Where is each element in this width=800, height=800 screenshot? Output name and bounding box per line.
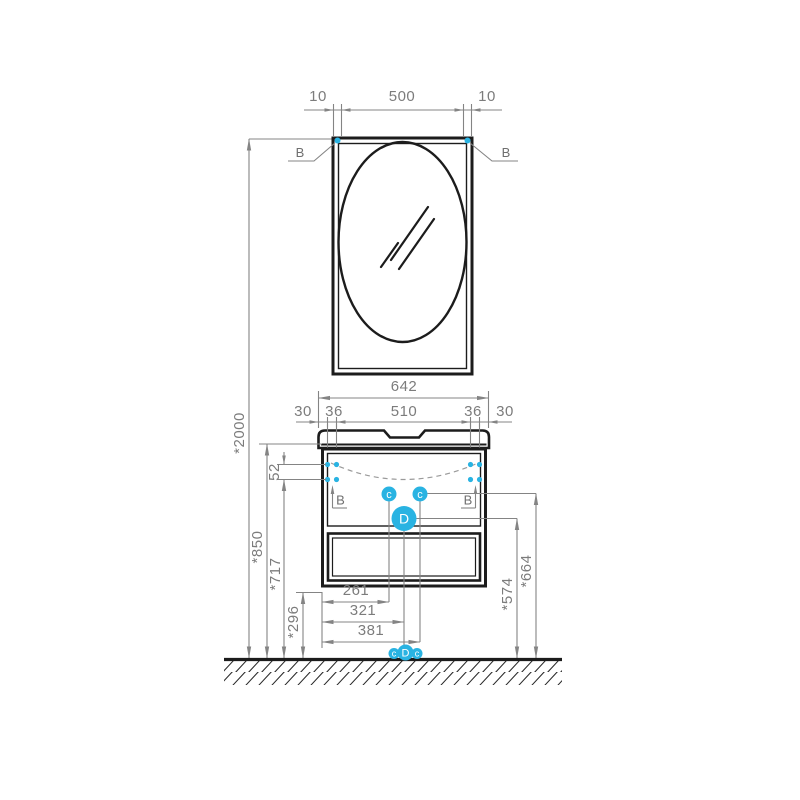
mirror-width-dimension: 10 500 10 — [304, 88, 502, 136]
svg-text:30: 30 — [294, 403, 312, 420]
arrowhead — [342, 108, 351, 112]
floor-connection-markers: c D c — [389, 645, 423, 661]
mount-callout-right: B — [470, 143, 518, 161]
mount-point-dot-left — [335, 138, 341, 144]
svg-text:B: B — [502, 145, 511, 160]
svg-text:36: 36 — [464, 403, 482, 420]
svg-text:c: c — [392, 649, 397, 659]
dim-label-2000: *2000 — [231, 412, 248, 454]
dim-label-total-width: 642 — [391, 378, 418, 395]
mirror-cabinet: B B — [249, 138, 518, 375]
svg-text:B: B — [464, 493, 473, 508]
arrowhead — [325, 108, 334, 112]
dim-label-850: *850 — [249, 531, 266, 564]
arrowhead — [472, 108, 481, 112]
mount-callout-left: B — [288, 143, 335, 161]
mirror-frame-inner — [339, 144, 467, 369]
svg-text:c: c — [415, 649, 420, 659]
connection-offset-dimensions: 261 321 381 — [322, 582, 420, 648]
svg-text:c: c — [417, 489, 423, 501]
arrowhead — [455, 108, 464, 112]
glass-glare-icon — [381, 207, 434, 269]
arrowhead — [337, 420, 346, 424]
svg-text:D: D — [402, 648, 410, 660]
dim-label-mirror-width: 500 — [389, 88, 416, 105]
svg-text:36: 36 — [325, 403, 343, 420]
installation-drawing: 10 500 10 B B 642 — [0, 0, 800, 800]
svg-text:30: 30 — [496, 403, 514, 420]
svg-text:510: 510 — [391, 403, 418, 420]
supply-marker-left: c — [382, 487, 397, 502]
mirror-frame-outer — [333, 138, 472, 374]
svg-text:B: B — [296, 145, 305, 160]
arrowhead — [310, 420, 319, 424]
segment-dimension: 30 36 510 36 30 — [294, 403, 514, 427]
dim-label-664: *664 — [518, 555, 535, 588]
drain-marker: D — [392, 506, 417, 531]
drawing-canvas: 10 500 10 B B 642 — [0, 0, 800, 800]
dim-label-52: 52 — [266, 463, 283, 481]
svg-text:D: D — [399, 511, 409, 527]
arrowhead — [282, 456, 286, 465]
dim-label-offset-right: 10 — [478, 88, 496, 105]
supply-marker-right: c — [413, 487, 428, 502]
svg-text:B: B — [336, 493, 345, 508]
dim-label-261: 261 — [343, 582, 370, 599]
svg-text:c: c — [386, 489, 392, 501]
dim-label-717: *717 — [267, 558, 284, 591]
dim-label-296: *296 — [285, 606, 302, 639]
dim-label-574: *574 — [499, 578, 516, 611]
dim-label-321: 321 — [350, 602, 377, 619]
height-dimensions-left: *2000 *850 52 *717 *296 — [231, 139, 326, 658]
dim-label-381: 381 — [358, 622, 385, 639]
arrowhead — [462, 420, 471, 424]
mount-point-dot-right — [465, 138, 471, 144]
dim-label-offset-left: 10 — [309, 88, 327, 105]
floor: c D c — [224, 645, 562, 686]
floor-hatching — [224, 661, 562, 685]
arrowhead — [489, 420, 498, 424]
